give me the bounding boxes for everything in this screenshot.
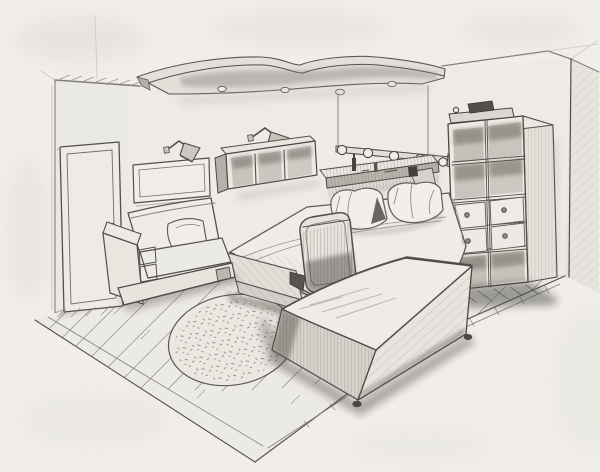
paper-grain-overlay xyxy=(0,0,600,472)
bedroom-sketch xyxy=(0,0,600,472)
sketch-page xyxy=(0,0,600,472)
